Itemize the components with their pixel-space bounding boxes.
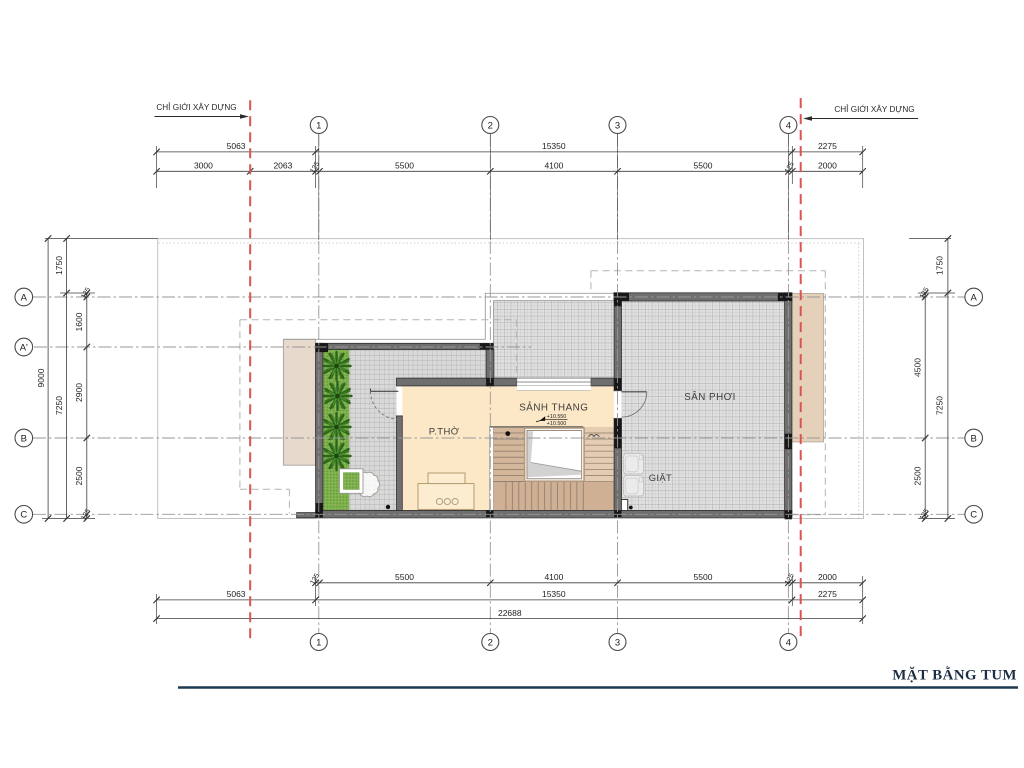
svg-text:1750: 1750 [54,256,64,275]
svg-text:1: 1 [316,637,321,648]
svg-text:5063: 5063 [227,141,246,151]
svg-text:7250: 7250 [935,396,945,415]
svg-text:22688: 22688 [498,608,522,618]
svg-text:15350: 15350 [542,141,566,151]
svg-text:4: 4 [786,120,791,131]
svg-text:5063: 5063 [227,589,246,599]
svg-text:2: 2 [488,120,493,131]
svg-text:15350: 15350 [542,589,566,599]
svg-text:P.THỜ: P.THỜ [429,426,460,437]
svg-text:C: C [970,510,977,521]
svg-text:5500: 5500 [395,160,414,170]
svg-text:+10.550: +10.550 [547,414,567,420]
svg-text:4100: 4100 [544,572,563,582]
svg-text:2000: 2000 [818,572,837,582]
svg-text:A: A [21,292,28,303]
svg-text:SÂN PHƠI: SÂN PHƠI [684,392,736,403]
svg-text:SẢNH THANG: SẢNH THANG [519,401,588,413]
svg-text:MẶT BẰNG TUM: MẶT BẰNG TUM [892,667,1017,684]
svg-text:3000: 3000 [194,160,213,170]
svg-text:4500: 4500 [913,358,923,377]
svg-text:2275: 2275 [818,141,837,151]
svg-text:B: B [971,433,977,444]
svg-text:2900: 2900 [74,383,84,402]
svg-text:2500: 2500 [74,466,84,485]
svg-text:4100: 4100 [544,160,563,170]
svg-text:C: C [20,510,27,521]
svg-text:3: 3 [615,120,620,131]
svg-text:1: 1 [316,120,321,131]
svg-text:4: 4 [786,637,791,648]
svg-text:3: 3 [615,637,620,648]
svg-text:7250: 7250 [54,396,64,415]
svg-text:1750: 1750 [935,256,945,275]
svg-text:2: 2 [488,637,493,648]
svg-text:2275: 2275 [818,589,837,599]
svg-text:B: B [21,433,27,444]
svg-text:9000: 9000 [36,368,46,387]
svg-text:2063: 2063 [273,160,292,170]
svg-text:GIẶT: GIẶT [649,473,672,483]
svg-text:CHỈ GIỚI XÂY DỰNG: CHỈ GIỚI XÂY DỰNG [156,101,236,112]
svg-text:2000: 2000 [818,160,837,170]
svg-text:CHỈ GIỚI XÂY DỰNG: CHỈ GIỚI XÂY DỰNG [834,103,914,114]
svg-text:A: A [971,292,978,303]
svg-text:A': A' [20,342,28,353]
svg-text:1600: 1600 [74,312,84,331]
svg-text:+10.500: +10.500 [547,421,567,427]
svg-text:2500: 2500 [913,466,923,485]
svg-text:5500: 5500 [395,572,414,582]
svg-text:5500: 5500 [694,160,713,170]
svg-text:5500: 5500 [694,572,713,582]
